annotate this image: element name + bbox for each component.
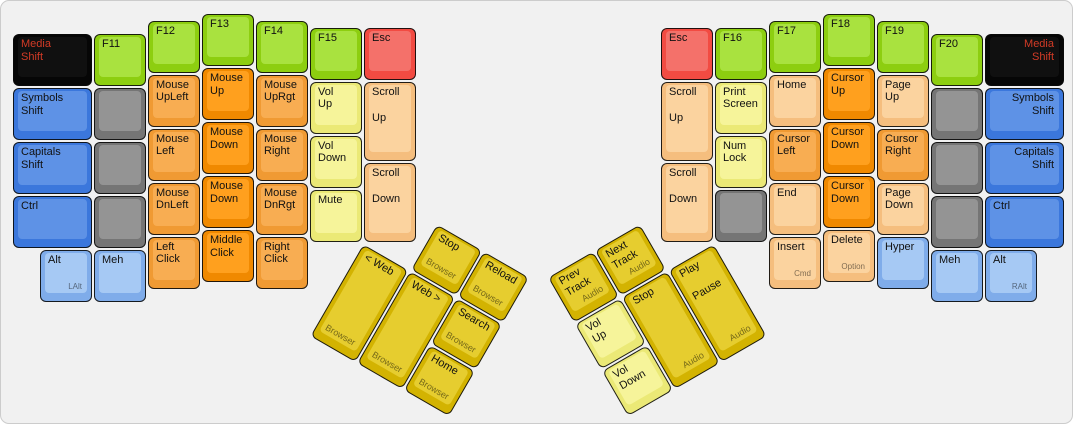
key-secondary-label: Down	[372, 193, 400, 205]
key-cursor-down[interactable]: Cursor Down	[823, 176, 875, 228]
key-label: Cursor Down	[831, 180, 870, 205]
key-ctrl[interactable]: Ctrl	[985, 196, 1064, 248]
key-delete[interactable]: DeleteOption	[823, 230, 875, 282]
key-num-lock[interactable]: Num Lock	[715, 136, 767, 188]
key-vol-up[interactable]: Vol Up	[310, 82, 362, 134]
key-label: F13	[210, 18, 249, 31]
keycap-top	[936, 199, 978, 239]
key-label: Scroll	[372, 86, 411, 99]
key-label: Num Lock	[723, 140, 762, 165]
key-label: Symbols Shift	[21, 92, 87, 117]
key-mouse-down[interactable]: Mouse Down	[202, 122, 254, 174]
key-secondary-label: Down	[669, 193, 697, 205]
key-ctrl[interactable]: Ctrl	[13, 196, 92, 248]
key-mouse-dnleft[interactable]: Mouse DnLeft	[148, 183, 200, 235]
key-cursor-right[interactable]: Cursor Right	[877, 129, 929, 181]
key-page-up[interactable]: Page Up	[877, 75, 929, 127]
keycap-top	[99, 91, 141, 131]
key-blank[interactable]	[931, 88, 983, 140]
key-label: F20	[939, 38, 978, 51]
key-scroll-down[interactable]: ScrollDown	[364, 163, 416, 242]
key-f11[interactable]: F11	[94, 34, 146, 86]
key-sub-label: Option	[841, 262, 865, 271]
key-f14[interactable]: F14	[256, 21, 308, 73]
key-mouse-left[interactable]: Mouse Left	[148, 129, 200, 181]
key-label: F11	[102, 38, 141, 51]
key-label: End	[777, 187, 816, 200]
key-sub-label: RAlt	[1012, 282, 1027, 291]
key-label: Insert	[777, 241, 816, 254]
key-blank[interactable]	[931, 196, 983, 248]
keycap-top	[936, 91, 978, 131]
key-label: Esc	[669, 32, 708, 45]
key-label: Mouse DnLeft	[156, 187, 195, 212]
key-capitals-shift[interactable]: Capitals Shift	[13, 142, 92, 194]
key-label: Mouse UpRgt	[264, 79, 303, 104]
key-label: Scroll	[669, 86, 708, 99]
key-mouse-dnrgt[interactable]: Mouse DnRgt	[256, 183, 308, 235]
key-esc[interactable]: Esc	[661, 28, 713, 80]
key-media-shift[interactable]: Media Shift	[985, 34, 1064, 86]
key-mute[interactable]: Mute	[310, 190, 362, 242]
key-label: Cursor Right	[885, 133, 924, 158]
key-hyper[interactable]: Hyper	[877, 237, 929, 289]
key-media-shift[interactable]: Media Shift	[13, 34, 92, 86]
key-f16[interactable]: F16	[715, 28, 767, 80]
key-label: Vol Down	[318, 140, 357, 165]
key-scroll-down[interactable]: ScrollDown	[661, 163, 713, 242]
key-f13[interactable]: F13	[202, 14, 254, 66]
key-sub-label: Cmd	[794, 269, 811, 278]
key-cursor-up[interactable]: Cursor Up	[823, 68, 875, 120]
key-label: Home	[777, 79, 816, 92]
key-f12[interactable]: F12	[148, 21, 200, 73]
key-label: Mute	[318, 194, 357, 207]
key-label: Scroll	[669, 167, 708, 180]
key-label: Capitals Shift	[990, 146, 1054, 171]
keycap-top	[99, 199, 141, 239]
key-blank[interactable]	[94, 196, 146, 248]
key-label: Left Click	[156, 241, 195, 266]
key-mouse-uprgt[interactable]: Mouse UpRgt	[256, 75, 308, 127]
key-label: Mouse DnRgt	[264, 187, 303, 212]
key-label: Mouse UpLeft	[156, 79, 195, 104]
key-label: Media Shift	[21, 38, 87, 63]
key-symbols-shift[interactable]: Symbols Shift	[985, 88, 1064, 140]
key-label: Mouse Left	[156, 133, 195, 158]
key-esc[interactable]: Esc	[364, 28, 416, 80]
key-label: Page Up	[885, 79, 924, 104]
key-alt[interactable]: AltLAlt	[40, 250, 92, 302]
key-left-click[interactable]: Left Click	[148, 237, 200, 289]
key-label: Print Screen	[723, 86, 762, 111]
key-label: Symbols Shift	[990, 92, 1054, 117]
key-mouse-upleft[interactable]: Mouse UpLeft	[148, 75, 200, 127]
key-label: Meh	[939, 254, 978, 267]
key-label: Mouse Down	[210, 180, 249, 205]
key-blank[interactable]	[94, 142, 146, 194]
key-label: Cursor Down	[831, 126, 870, 151]
key-label: Ctrl	[21, 200, 87, 213]
key-end[interactable]: End	[769, 183, 821, 235]
key-blank[interactable]	[94, 88, 146, 140]
key-insert[interactable]: InsertCmd	[769, 237, 821, 289]
key-symbols-shift[interactable]: Symbols Shift	[13, 88, 92, 140]
key-label: Ctrl	[993, 200, 1059, 213]
key-secondary-label: Up	[669, 112, 683, 124]
key-f18[interactable]: F18	[823, 14, 875, 66]
key-label: F17	[777, 25, 816, 38]
key-f19[interactable]: F19	[877, 21, 929, 73]
key-mouse-right[interactable]: Mouse Right	[256, 129, 308, 181]
key-f17[interactable]: F17	[769, 21, 821, 73]
key-label: F19	[885, 25, 924, 38]
key-scroll-up[interactable]: ScrollUp	[661, 82, 713, 161]
keycap-top	[936, 145, 978, 185]
key-label: Page Down	[885, 187, 924, 212]
key-label: Esc	[372, 32, 411, 45]
key-label: Vol Up	[318, 86, 357, 111]
key-label: Alt	[48, 254, 87, 267]
key-label: F18	[831, 18, 870, 31]
key-mouse-up[interactable]: Mouse Up	[202, 68, 254, 120]
key-label: F16	[723, 32, 762, 45]
key-page-down[interactable]: Page Down	[877, 183, 929, 235]
key-label: F12	[156, 25, 195, 38]
key-capitals-shift[interactable]: Capitals Shift	[985, 142, 1064, 194]
key-label: Delete	[831, 234, 870, 247]
key-cursor-left[interactable]: Cursor Left	[769, 129, 821, 181]
key-print-screen[interactable]: Print Screen	[715, 82, 767, 134]
keycap-top	[99, 145, 141, 185]
key-meh[interactable]: Meh	[94, 250, 146, 302]
key-label: Capitals Shift	[21, 146, 87, 171]
key-f20[interactable]: F20	[931, 34, 983, 86]
key-secondary-label: Up	[372, 112, 386, 124]
key-label: Cursor Left	[777, 133, 816, 158]
key-vol-down[interactable]: Vol Down	[310, 136, 362, 188]
key-middle-click[interactable]: Middle Click	[202, 230, 254, 282]
key-label: Right Click	[264, 241, 303, 266]
key-label: Media Shift	[990, 38, 1054, 63]
key-label: Mouse Down	[210, 126, 249, 151]
key-home[interactable]: Home	[769, 75, 821, 127]
key-scroll-up[interactable]: ScrollUp	[364, 82, 416, 161]
key-label: Mouse Up	[210, 72, 249, 97]
key-cursor-down[interactable]: Cursor Down	[823, 122, 875, 174]
key-f15[interactable]: F15	[310, 28, 362, 80]
key-label: Meh	[102, 254, 141, 267]
key-sub-label: LAlt	[68, 282, 82, 291]
keyboard-layout-canvas: Media ShiftSymbols ShiftCapitals ShiftCt…	[0, 0, 1073, 424]
key-label: Hyper	[885, 241, 924, 254]
key-label: Alt	[993, 254, 1032, 267]
key-mouse-down[interactable]: Mouse Down	[202, 176, 254, 228]
key-alt[interactable]: AltRAlt	[985, 250, 1037, 302]
key-label: Mouse Right	[264, 133, 303, 158]
key-label: Cursor Up	[831, 72, 870, 97]
key-label: Scroll	[372, 167, 411, 180]
key-meh[interactable]: Meh	[931, 250, 983, 302]
key-label: F14	[264, 25, 303, 38]
key-blank[interactable]	[931, 142, 983, 194]
key-right-click[interactable]: Right Click	[256, 237, 308, 289]
key-label: Middle Click	[210, 234, 249, 259]
key-blank[interactable]	[715, 190, 767, 242]
key-label: F15	[318, 32, 357, 45]
keycap-top	[720, 193, 762, 233]
